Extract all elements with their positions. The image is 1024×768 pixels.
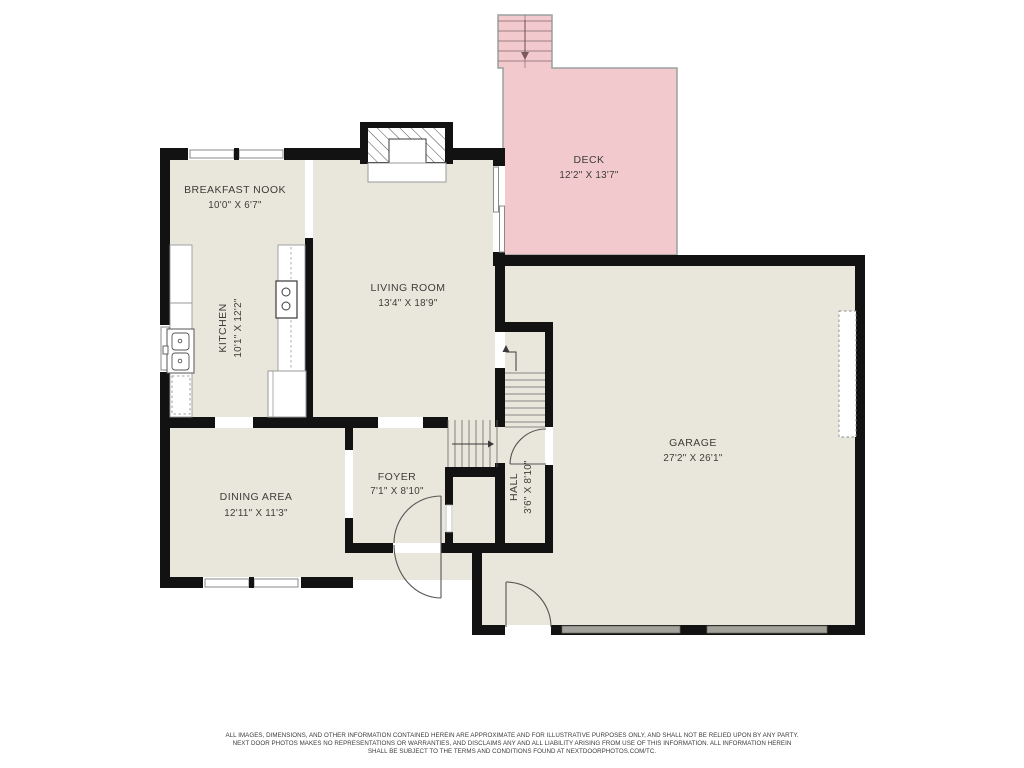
wall-garage-north	[493, 255, 865, 266]
garage-overhead-door-right	[707, 626, 827, 633]
kitchen-dims: 10'1" X 12'2"	[233, 298, 244, 357]
opening-living-foyer	[378, 417, 423, 428]
garage-overhead-door-left	[562, 626, 680, 633]
kitchen-name: KITCHEN	[217, 303, 229, 352]
fireplace	[360, 122, 453, 182]
dining-windows	[203, 577, 301, 588]
floor-plan-canvas: BREAKFAST NOOK 10'0" X 6'7" KITCHEN 10'1…	[0, 0, 1024, 768]
dining-area-dims: 12'11" X 11'3"	[224, 508, 288, 519]
opening-hall-garage-door	[545, 427, 553, 465]
living-room-name: LIVING ROOM	[371, 282, 446, 294]
wall-under-stairs	[445, 467, 505, 477]
opening-garage-exit-door	[505, 625, 551, 635]
opening-dining-foyer	[345, 450, 353, 518]
wall-garage-east	[855, 255, 865, 635]
dining-area-name: DINING AREA	[220, 491, 293, 503]
deck-area	[498, 15, 677, 255]
breakfast-nook-name: BREAKFAST NOOK	[184, 184, 286, 196]
kitchen-fridge	[268, 371, 306, 417]
wall-stairwell-north	[495, 322, 553, 332]
foyer-name: FOYER	[378, 471, 416, 483]
floor-plan-page: BREAKFAST NOOK 10'0" X 6'7" KITCHEN 10'1…	[0, 0, 1024, 768]
wall-stairwell-west	[495, 368, 505, 427]
deck-dims: 12'2" X 13'7"	[559, 170, 618, 181]
wall-south-foyer-hall	[345, 543, 553, 553]
wall-hall-east-lower	[545, 465, 553, 543]
fireplace-firebox	[389, 139, 426, 163]
disclaimer: ALL IMAGES, DIMENSIONS, AND OTHER INFORM…	[226, 732, 799, 755]
disclaimer-line-2: NEXT DOOR PHOTOS MAKES NO REPRESENTATION…	[233, 740, 792, 747]
wall-garage-west-lower	[472, 543, 482, 635]
disclaimer-line-3: SHALL BE SUBJECT TO THE TERMS AND CONDIT…	[368, 748, 657, 755]
hall-name: HALL	[508, 473, 520, 501]
closet-door-slab	[446, 505, 452, 532]
breakfast-nook-window	[188, 148, 284, 160]
breakfast-nook-dims: 10'0" X 6'7"	[208, 200, 262, 211]
wall-hall-east-upper	[545, 332, 553, 427]
garage-storage-dashed	[839, 311, 856, 437]
foyer-dims: 7'1" X 8'10"	[370, 486, 424, 497]
disclaimer-line-1: ALL IMAGES, DIMENSIONS, AND OTHER INFORM…	[226, 732, 799, 739]
opening-front-door	[393, 543, 441, 553]
living-room-dims: 13'4" X 18'9"	[378, 298, 437, 309]
deck-name: DECK	[574, 154, 605, 166]
sink-faucet	[163, 346, 168, 354]
opening-breakfast-living	[305, 160, 313, 238]
opening-kitchen-dining	[215, 417, 253, 428]
sliding-door-deck	[493, 166, 505, 252]
garage-name: GARAGE	[669, 437, 717, 449]
fireplace-hearth	[368, 163, 446, 182]
garage-dims: 27'2" X 26'1"	[663, 453, 722, 464]
kitchen-stove	[276, 281, 297, 318]
hall-dims: 3'6" X 8'10"	[523, 460, 534, 514]
wall-garage-west-upper	[495, 266, 505, 322]
kitchen-sink	[163, 329, 194, 373]
